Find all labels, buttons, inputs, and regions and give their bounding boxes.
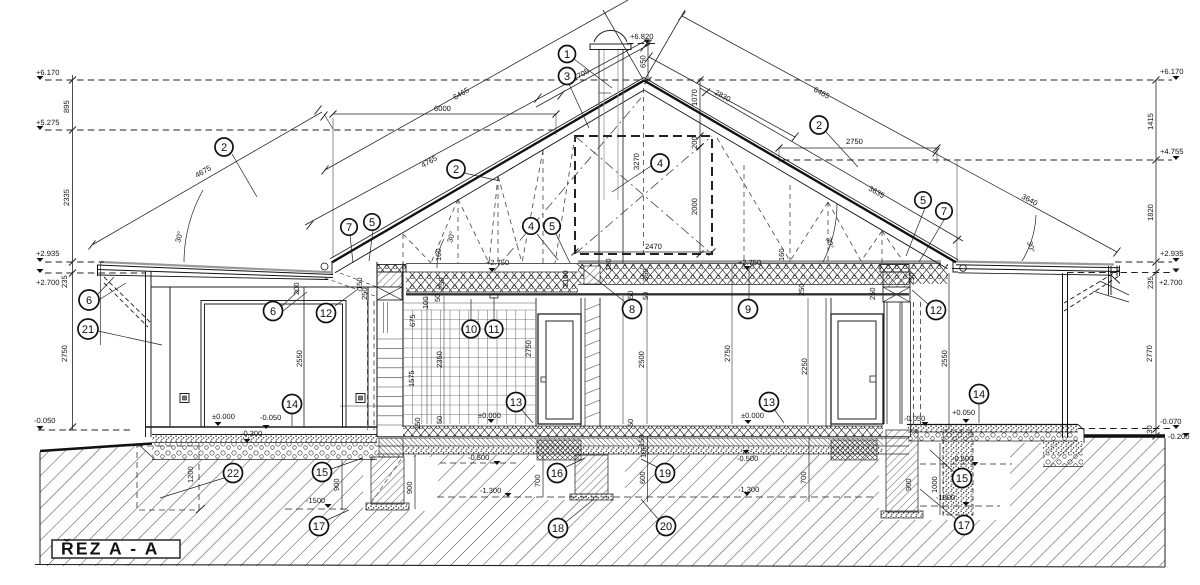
svg-text:10: 10 xyxy=(465,324,477,336)
svg-text:11: 11 xyxy=(488,324,499,336)
svg-text:-0.300: -0.300 xyxy=(241,429,262,438)
svg-text:250: 250 xyxy=(907,272,916,285)
svg-text:2470: 2470 xyxy=(645,242,662,251)
svg-text:+2.750: +2.750 xyxy=(738,258,761,267)
svg-text:700: 700 xyxy=(799,471,808,484)
svg-text:900: 900 xyxy=(332,478,341,491)
svg-text:13: 13 xyxy=(763,397,775,409)
svg-text:±0.000: ±0.000 xyxy=(741,411,764,420)
svg-text:17: 17 xyxy=(313,521,325,533)
svg-text:9: 9 xyxy=(745,304,751,316)
svg-text:50: 50 xyxy=(435,416,444,424)
svg-text:900: 900 xyxy=(405,481,414,494)
svg-text:200: 200 xyxy=(292,282,301,295)
svg-text:235: 235 xyxy=(60,275,69,288)
svg-text:5: 5 xyxy=(920,195,926,207)
svg-text:50: 50 xyxy=(626,291,635,299)
svg-text:2250: 2250 xyxy=(800,358,809,375)
svg-text:2550: 2550 xyxy=(940,350,949,367)
svg-text:2750: 2750 xyxy=(60,345,69,362)
svg-text:250: 250 xyxy=(437,277,446,290)
svg-text:20: 20 xyxy=(660,521,672,533)
svg-text:-0.050: -0.050 xyxy=(260,413,281,422)
svg-text:2770: 2770 xyxy=(1145,345,1154,362)
svg-text:250: 250 xyxy=(868,287,877,300)
svg-text:-1500: -1500 xyxy=(306,496,325,505)
svg-text:250: 250 xyxy=(797,283,806,296)
svg-text:250: 250 xyxy=(360,287,369,300)
svg-text:-0.050: -0.050 xyxy=(34,416,56,425)
svg-text:1: 1 xyxy=(564,49,570,61)
svg-text:2750: 2750 xyxy=(723,345,732,362)
svg-text:2750: 2750 xyxy=(846,137,863,146)
svg-text:600: 600 xyxy=(638,471,647,484)
svg-text:±0.000: ±0.000 xyxy=(478,411,501,420)
svg-text:14: 14 xyxy=(973,389,985,401)
svg-text:4: 4 xyxy=(657,158,663,170)
svg-text:-1500: -1500 xyxy=(936,493,955,502)
svg-text:+2.700: +2.700 xyxy=(1159,278,1182,287)
svg-text:18: 18 xyxy=(552,523,564,535)
svg-text:900: 900 xyxy=(904,478,913,491)
svg-text:+2.700: +2.700 xyxy=(36,278,59,287)
svg-text:6: 6 xyxy=(86,295,92,307)
svg-text:+2.935: +2.935 xyxy=(1160,249,1183,258)
svg-text:13: 13 xyxy=(510,397,522,409)
svg-text:+6.170: +6.170 xyxy=(1160,67,1183,76)
svg-text:50: 50 xyxy=(626,419,635,427)
svg-text:16: 16 xyxy=(551,468,563,480)
svg-text:+4.755: +4.755 xyxy=(1160,147,1183,156)
svg-text:2: 2 xyxy=(816,120,822,132)
svg-text:2335: 2335 xyxy=(62,189,71,206)
svg-text:14: 14 xyxy=(286,399,298,411)
svg-text:+6.170: +6.170 xyxy=(36,68,59,77)
svg-text:+2.750: +2.750 xyxy=(486,258,509,267)
svg-text:895: 895 xyxy=(62,100,71,113)
svg-text:22: 22 xyxy=(227,468,239,480)
svg-text:650: 650 xyxy=(639,55,648,68)
svg-text:2150: 2150 xyxy=(561,270,570,287)
svg-text:5: 5 xyxy=(549,221,555,233)
svg-text:2550: 2550 xyxy=(295,350,304,367)
svg-text:7: 7 xyxy=(346,222,352,234)
svg-text:2350: 2350 xyxy=(435,351,444,368)
svg-text:150: 150 xyxy=(413,417,422,430)
svg-text:-0.500: -0.500 xyxy=(468,453,489,462)
svg-text:-1.300: -1.300 xyxy=(480,486,501,495)
svg-text:360: 360 xyxy=(641,268,650,281)
svg-text:1070: 1070 xyxy=(690,89,699,106)
svg-text:15: 15 xyxy=(956,473,968,485)
svg-text:1000: 1000 xyxy=(930,476,939,493)
svg-text:3: 3 xyxy=(564,71,570,83)
svg-text:2: 2 xyxy=(221,142,227,154)
svg-text:235: 235 xyxy=(1146,276,1155,289)
svg-text:6: 6 xyxy=(270,306,276,318)
svg-text:100: 100 xyxy=(421,296,430,309)
svg-text:12: 12 xyxy=(930,305,942,317)
svg-text:160: 160 xyxy=(434,248,443,261)
svg-text:675: 675 xyxy=(408,314,417,327)
svg-text:21: 21 xyxy=(82,324,94,336)
svg-text:1415: 1415 xyxy=(1146,113,1155,130)
svg-text:160: 160 xyxy=(777,248,786,261)
svg-text:+2.935: +2.935 xyxy=(36,249,59,258)
svg-text:1200: 1200 xyxy=(186,466,195,483)
svg-text:130: 130 xyxy=(1145,425,1154,438)
svg-text:19: 19 xyxy=(659,468,671,480)
svg-text:+0.050: +0.050 xyxy=(952,408,975,417)
svg-text:50: 50 xyxy=(641,292,650,300)
svg-text:12: 12 xyxy=(320,308,332,320)
svg-text:50: 50 xyxy=(433,294,442,302)
svg-text:±0.000: ±0.000 xyxy=(212,412,235,421)
svg-text:3270: 3270 xyxy=(632,153,641,170)
svg-text:200: 200 xyxy=(690,136,699,149)
svg-text:-0.500: -0.500 xyxy=(737,454,758,463)
svg-text:-0.500: -0.500 xyxy=(952,454,973,463)
svg-text:1820: 1820 xyxy=(1146,204,1155,221)
svg-text:160: 160 xyxy=(604,258,613,271)
svg-text:4: 4 xyxy=(528,221,534,233)
svg-text:6000: 6000 xyxy=(434,104,451,113)
svg-text:700: 700 xyxy=(533,474,542,487)
svg-text:-0.070: -0.070 xyxy=(1160,417,1182,426)
svg-text:5: 5 xyxy=(369,217,375,229)
svg-text:2000: 2000 xyxy=(690,198,699,215)
svg-text:2750: 2750 xyxy=(524,340,533,357)
svg-text:2500: 2500 xyxy=(637,351,646,368)
svg-text:2: 2 xyxy=(453,164,459,176)
svg-text:15: 15 xyxy=(316,467,328,479)
svg-text:ŘEZ A - A: ŘEZ A - A xyxy=(61,539,160,559)
svg-text:-0.050: -0.050 xyxy=(904,414,925,423)
svg-text:17: 17 xyxy=(958,520,970,532)
svg-text:8: 8 xyxy=(629,304,635,316)
svg-text:7: 7 xyxy=(941,206,947,218)
svg-text:+5.275: +5.275 xyxy=(36,118,59,127)
svg-text:1575: 1575 xyxy=(407,370,416,387)
